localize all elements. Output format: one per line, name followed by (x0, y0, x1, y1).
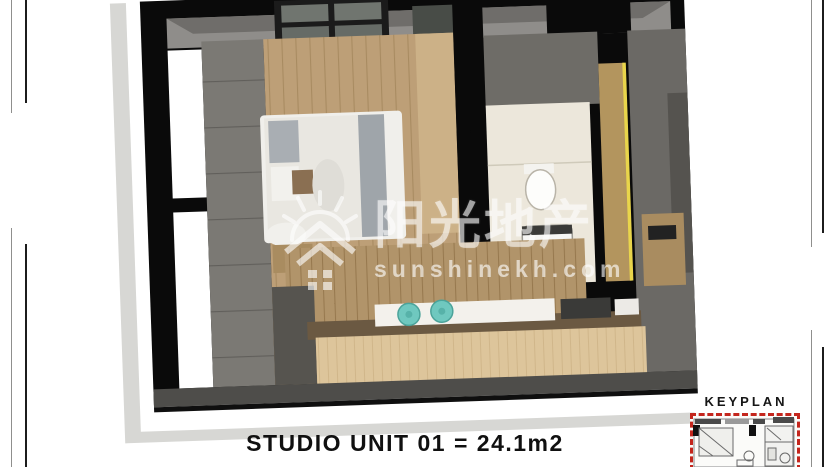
right-margin-rule-top-outer (822, 0, 824, 233)
unit-title: STUDIO UNIT 01 = 24.1m2 (135, 430, 675, 457)
left-margin-rule-top-outer (11, 0, 12, 113)
blanket (358, 114, 388, 237)
sink (615, 298, 640, 315)
toilet (525, 169, 556, 210)
right-margin-rule-bottom-inner (811, 330, 812, 467)
unit-3d-render (125, 0, 710, 432)
top-right-wall (546, 0, 632, 35)
bed (260, 111, 407, 248)
hall-cabinet (642, 213, 686, 286)
right-margin-rule-top-inner (811, 0, 812, 247)
stool-teal-2 (430, 300, 453, 323)
pillow-gray (268, 120, 299, 163)
keyplan-label: KEYPLAN (688, 394, 804, 409)
pillow-brown (292, 170, 314, 195)
page-canvas: 阳光地产 sunshinekh.com STUDIO UNIT 01 = 24.… (0, 0, 835, 467)
left-margin-rule-bottom-outer (11, 228, 12, 467)
unit-3d-render-graphic (125, 0, 710, 432)
left-margin-rule-top-inner (25, 0, 27, 103)
floor-runner (415, 33, 460, 234)
keyplan-floor-plan (693, 416, 797, 467)
left-margin-rule-bottom-inner (25, 244, 27, 467)
cooktop (560, 297, 611, 319)
right-margin-rule-bottom-outer (822, 347, 824, 467)
stool-teal-1 (398, 303, 421, 326)
keyplan-map (690, 413, 800, 467)
